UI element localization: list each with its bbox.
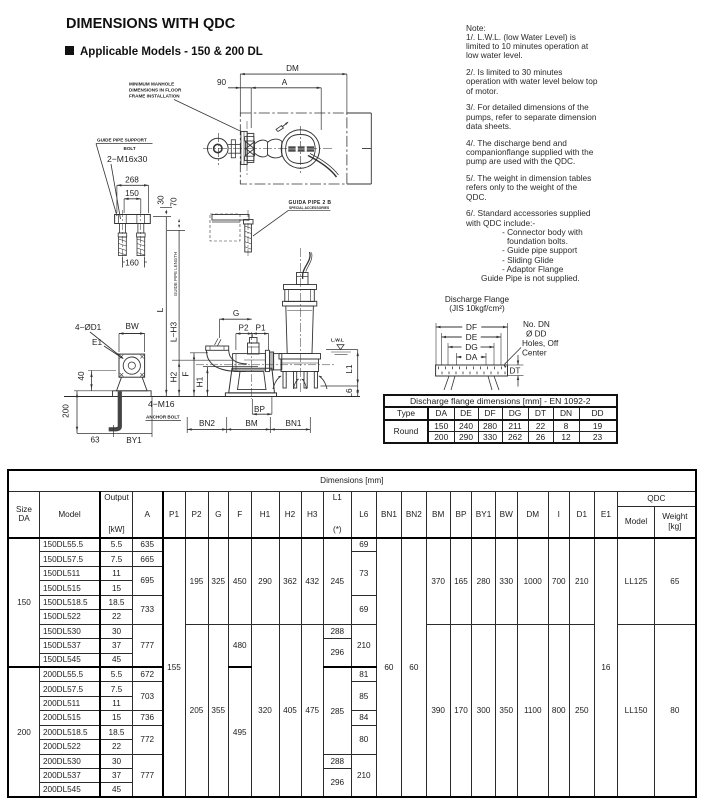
svg-text:268: 268 — [125, 176, 139, 185]
svg-text:63: 63 — [90, 436, 100, 445]
svg-text:GUIDE PIPE LENGTH: GUIDE PIPE LENGTH — [173, 252, 178, 296]
svg-text:H1: H1 — [194, 376, 204, 387]
svg-text:P2: P2 — [238, 324, 248, 333]
svg-text:Ø DD: Ø DD — [526, 330, 547, 339]
svg-text:40: 40 — [77, 371, 86, 381]
svg-text:DE: DE — [466, 332, 478, 342]
svg-text:FRAME INSTALLATION: FRAME INSTALLATION — [129, 94, 180, 99]
svg-text:4−ØD1: 4−ØD1 — [75, 323, 102, 332]
svg-text:G: G — [233, 309, 239, 318]
svg-text:160: 160 — [125, 259, 139, 268]
svg-text:L1: L1 — [345, 364, 354, 374]
svg-text:MINIMUM MANHOLE: MINIMUM MANHOLE — [129, 82, 174, 87]
svg-text:BP: BP — [254, 405, 265, 414]
svg-text:F: F — [181, 371, 191, 376]
svg-text:Center: Center — [522, 349, 547, 358]
svg-text:BW: BW — [126, 322, 139, 331]
svg-text:2−M16x30: 2−M16x30 — [107, 154, 148, 164]
svg-text:150: 150 — [125, 189, 139, 198]
svg-text:Holes, Off: Holes, Off — [522, 339, 559, 348]
svg-text:DG: DG — [465, 342, 478, 352]
svg-text:ANCHOR BOLT: ANCHOR BOLT — [146, 415, 180, 420]
svg-text:BN1: BN1 — [286, 419, 302, 428]
svg-text:BN2: BN2 — [199, 419, 215, 428]
svg-text:DM: DM — [286, 64, 299, 73]
svg-text:H2: H2 — [169, 371, 179, 382]
svg-text:GUIDE PIPE SUPPORT: GUIDE PIPE SUPPORT — [97, 138, 147, 143]
svg-text:E1: E1 — [92, 338, 102, 347]
svg-text:BM: BM — [245, 419, 257, 428]
svg-text:No. DN: No. DN — [523, 320, 550, 329]
svg-text:SPECIAL ACCESSORIES: SPECIAL ACCESSORIES — [289, 206, 330, 210]
svg-text:BOLT: BOLT — [124, 146, 136, 151]
svg-text:L.W.L: L.W.L — [331, 338, 344, 344]
svg-text:200: 200 — [62, 404, 71, 418]
svg-text:DF: DF — [466, 322, 477, 332]
svg-text:L: L — [155, 307, 165, 312]
svg-text:L−H3: L−H3 — [169, 322, 179, 343]
svg-text:DT: DT — [510, 366, 521, 375]
svg-text:DA: DA — [466, 352, 478, 362]
svg-text:A: A — [282, 78, 288, 87]
svg-text:P1: P1 — [255, 324, 265, 333]
svg-text:BY1: BY1 — [126, 436, 142, 445]
svg-text:L6: L6 — [345, 388, 354, 398]
svg-text:30: 30 — [157, 195, 166, 205]
svg-text:DIMENSIONS IN FLOOR: DIMENSIONS IN FLOOR — [129, 88, 182, 93]
svg-text:70: 70 — [170, 197, 179, 207]
svg-text:90: 90 — [217, 78, 227, 87]
